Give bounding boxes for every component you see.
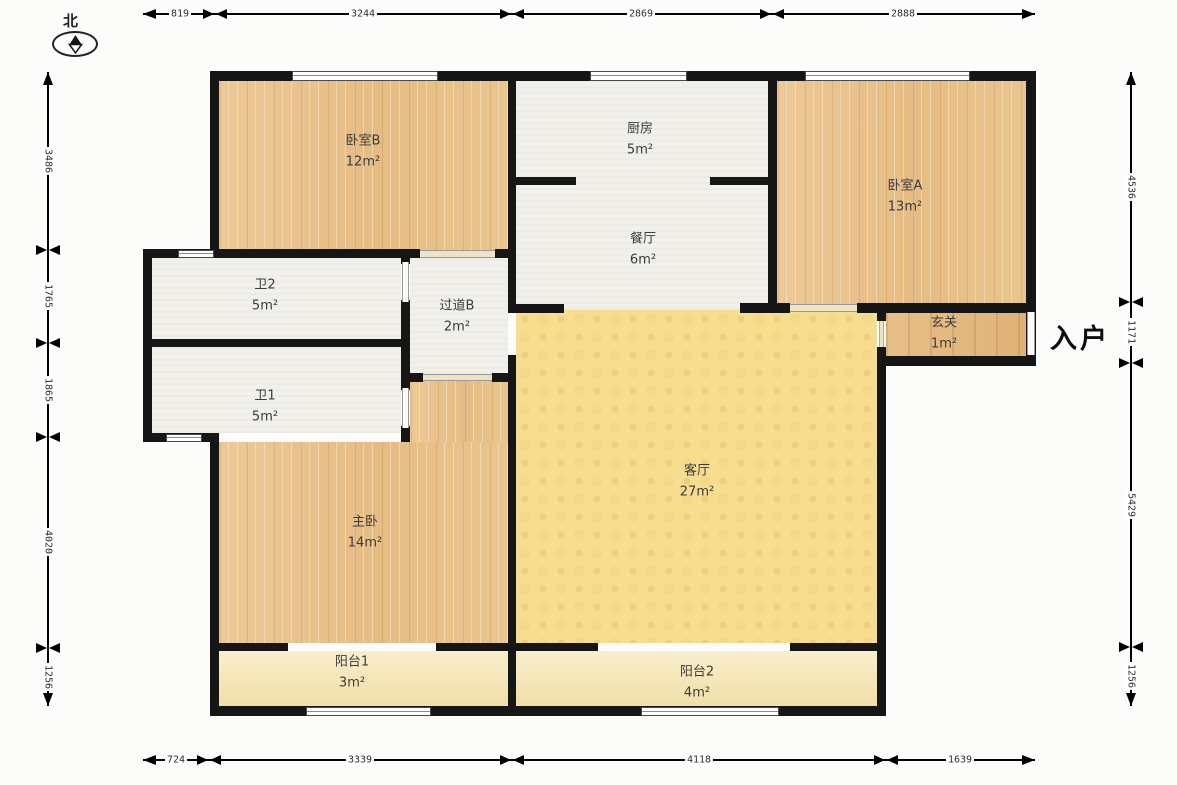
door-master bbox=[423, 374, 492, 381]
entry-door bbox=[1027, 312, 1035, 355]
north-compass-icon bbox=[52, 31, 98, 57]
dim-label: 1765 bbox=[43, 282, 54, 310]
dim-arrow-icon bbox=[1126, 693, 1136, 706]
north-label: 北 bbox=[63, 10, 78, 31]
room-label-bath-2: 卫2 5m² bbox=[252, 275, 278, 318]
dim-tick-icon bbox=[197, 754, 221, 766]
dim-label: 1256 bbox=[1126, 662, 1137, 690]
window-balcony-1 bbox=[306, 707, 431, 716]
dim-tick-icon bbox=[1119, 357, 1143, 369]
dim-arrow-icon bbox=[43, 693, 53, 706]
dim-label: 3244 bbox=[349, 9, 377, 20]
room-name: 厨房 bbox=[627, 119, 653, 140]
room-name: 卧室A bbox=[888, 176, 923, 197]
dim-tick-icon bbox=[1119, 641, 1143, 653]
dim-tick-icon bbox=[874, 754, 898, 766]
dim-label: 724 bbox=[165, 755, 187, 766]
dim-arrow-icon bbox=[143, 755, 156, 765]
dim-tick-icon bbox=[1119, 296, 1143, 308]
room-area: 5m² bbox=[252, 296, 278, 317]
dim-arrow-icon bbox=[143, 9, 156, 19]
dim-arrow-icon bbox=[1022, 9, 1035, 19]
room-area: 12m² bbox=[346, 152, 381, 173]
room-label-master: 主卧 14m² bbox=[348, 512, 382, 555]
room-area: 4m² bbox=[680, 683, 714, 704]
wall-left-exterior-upper bbox=[210, 71, 219, 258]
entrance-label: 入户 bbox=[1050, 317, 1110, 356]
room-area: 27m² bbox=[680, 482, 714, 503]
dim-label: 3339 bbox=[346, 755, 374, 766]
room-label-balcony-2: 阳台2 4m² bbox=[680, 662, 714, 705]
wall-right-exterior-lower bbox=[877, 366, 886, 716]
dim-line-right bbox=[1130, 72, 1132, 706]
dim-tick-icon bbox=[500, 8, 524, 20]
dim-label: 5429 bbox=[1126, 491, 1137, 519]
floor-plan: 卧室B 12m² 厨房 5m² 卧室A 13m² 餐厅 6m² 卫2 5m² 过… bbox=[0, 0, 1177, 785]
room-label-balcony-1: 阳台1 3m² bbox=[335, 652, 369, 695]
wall-living-balcony2-right bbox=[790, 643, 886, 651]
room-name: 主卧 bbox=[348, 512, 382, 533]
room-area: 5m² bbox=[627, 140, 653, 161]
room-name: 客厅 bbox=[680, 461, 714, 482]
dim-label: 1256 bbox=[43, 663, 54, 691]
room-area: 5m² bbox=[252, 407, 278, 428]
room-name: 卫2 bbox=[252, 275, 278, 296]
foyer-living-threshold bbox=[879, 321, 884, 347]
room-name: 卫1 bbox=[252, 386, 278, 407]
room-area: 3m² bbox=[335, 673, 369, 694]
dim-label: 1171 bbox=[1126, 318, 1137, 346]
wall-left-exterior-lower bbox=[210, 433, 219, 716]
window-bedroom-a bbox=[805, 71, 970, 81]
compass-needle-icon bbox=[68, 35, 83, 54]
window-bedroom-b bbox=[292, 71, 438, 81]
room-area: 6m² bbox=[630, 250, 656, 271]
room-area: 2m² bbox=[440, 317, 475, 338]
window-bath-1 bbox=[166, 434, 202, 442]
room-area: 13m² bbox=[888, 197, 923, 218]
dim-label: 1865 bbox=[43, 376, 54, 404]
dim-tick-icon bbox=[36, 337, 60, 349]
window-bath-2 bbox=[178, 250, 214, 258]
dim-arrow-icon bbox=[1126, 72, 1136, 85]
room-area: 14m² bbox=[348, 533, 382, 554]
room-name: 阳台1 bbox=[335, 652, 369, 673]
wall-foyer-bottom bbox=[877, 356, 1036, 366]
wall-kitchen-left bbox=[508, 71, 516, 311]
wall-hallway-b-bottom-left bbox=[401, 373, 423, 382]
door-bath-1 bbox=[402, 388, 409, 428]
dim-label: 3486 bbox=[43, 147, 54, 175]
door-bedroom-b bbox=[420, 250, 495, 258]
wall-bedroom-b-bottom-left bbox=[215, 249, 420, 258]
dim-label: 1639 bbox=[946, 755, 974, 766]
dim-tick-icon bbox=[500, 754, 524, 766]
room-name: 玄关 bbox=[931, 313, 957, 334]
room-label-foyer: 玄关 1m² bbox=[931, 313, 957, 356]
room-label-bedroom-a: 卧室A 13m² bbox=[888, 176, 923, 219]
wall-bath-divider bbox=[143, 339, 410, 347]
room-name: 阳台2 bbox=[680, 662, 714, 683]
room-floor-master-ext bbox=[410, 375, 508, 442]
wall-master-balcony1-right bbox=[436, 643, 512, 651]
wall-foyer-living-stub-top bbox=[877, 303, 886, 321]
room-name: 餐厅 bbox=[630, 229, 656, 250]
dim-label: 4020 bbox=[43, 528, 54, 556]
dim-tick-icon bbox=[36, 244, 60, 256]
room-label-bedroom-b: 卧室B 12m² bbox=[346, 131, 381, 174]
dim-arrow-icon bbox=[1022, 755, 1035, 765]
dim-tick-icon bbox=[203, 8, 227, 20]
wall-dining-right bbox=[768, 71, 777, 312]
door-bedroom-a bbox=[790, 304, 857, 312]
wall-center-vertical-lower bbox=[508, 378, 516, 716]
dim-label: 819 bbox=[169, 9, 191, 20]
wall-bath-right-c bbox=[401, 426, 410, 442]
wall-dining-living-stub bbox=[508, 304, 564, 313]
dim-line-bottom bbox=[143, 759, 1035, 761]
dim-label: 2888 bbox=[889, 9, 917, 20]
room-name: 卧室B bbox=[346, 131, 381, 152]
dim-tick-icon bbox=[36, 431, 60, 443]
dim-arrow-icon bbox=[43, 72, 53, 85]
dim-tick-icon bbox=[36, 642, 60, 654]
room-area: 1m² bbox=[931, 334, 957, 355]
wall-living-balcony2-left bbox=[512, 643, 598, 651]
door-bath-2 bbox=[402, 262, 409, 302]
room-label-kitchen: 厨房 5m² bbox=[627, 119, 653, 162]
window-kitchen bbox=[590, 71, 687, 81]
room-name: 过道B bbox=[440, 296, 475, 317]
wall-bedroom-a-bottom-left bbox=[740, 303, 790, 313]
room-floor-kitchen-dining bbox=[516, 81, 768, 310]
room-label-living: 客厅 27m² bbox=[680, 461, 714, 504]
wall-master-balcony1-left bbox=[215, 643, 288, 651]
wall-kitchen-dining-right bbox=[710, 177, 772, 185]
room-label-hallway-b: 过道B 2m² bbox=[440, 296, 475, 339]
dim-tick-icon bbox=[760, 8, 784, 20]
wall-kitchen-dining-left bbox=[512, 177, 576, 185]
wall-foyer-living-stub-bottom bbox=[877, 347, 886, 366]
window-balcony-2 bbox=[641, 707, 779, 716]
dim-label: 4536 bbox=[1126, 173, 1137, 201]
wall-hallway-b-bottom-right bbox=[492, 373, 512, 382]
dim-label: 4118 bbox=[685, 755, 713, 766]
room-label-bath-1: 卫1 5m² bbox=[252, 386, 278, 429]
room-label-dining: 餐厅 6m² bbox=[630, 229, 656, 272]
dim-label: 2869 bbox=[627, 9, 655, 20]
